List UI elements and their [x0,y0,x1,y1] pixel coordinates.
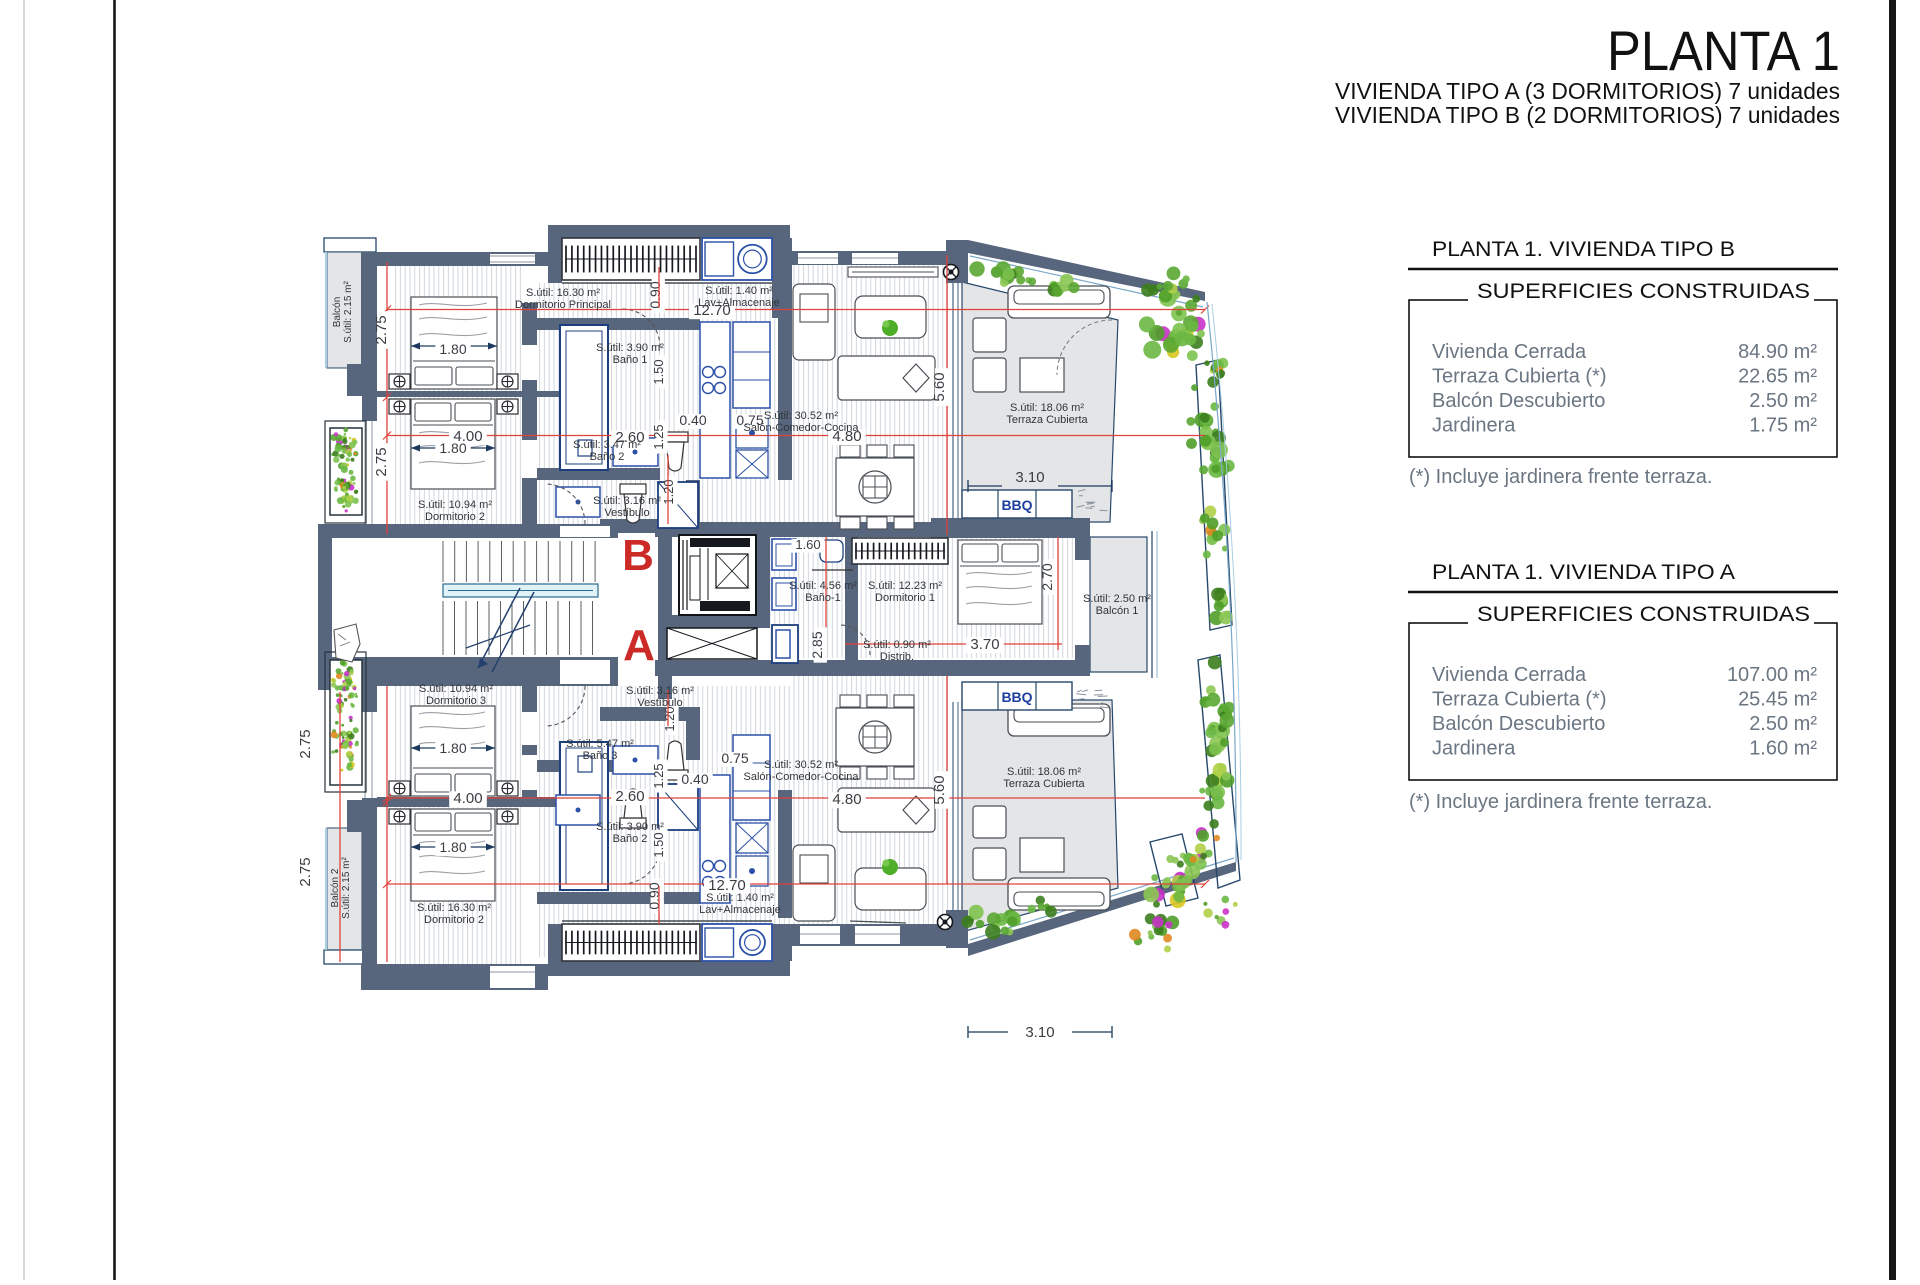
svg-text:Jardinera: Jardinera [1432,738,1516,760]
svg-text:Baño 1: Baño 1 [613,354,648,366]
svg-text:(*) Incluye jardinera frente t: (*) Incluye jardinera frente terraza. [1409,466,1712,488]
svg-text:S.útil: 3.47 m²: S.útil: 3.47 m² [573,439,641,451]
svg-text:S.útil: 30.52 m²: S.útil: 30.52 m² [764,410,838,422]
svg-text:Lav+Almacenaje: Lav+Almacenaje [699,904,781,916]
svg-text:Terraza Cubierta: Terraza Cubierta [1003,778,1085,790]
svg-text:SUPERFICIES CONSTRUIDAS: SUPERFICIES CONSTRUIDAS [1477,603,1810,626]
svg-text:A: A [623,621,655,670]
svg-text:Balcón Descubierto: Balcón Descubierto [1432,390,1605,412]
svg-text:Baño 3: Baño 3 [583,750,618,762]
svg-text:S.útil: 3.16 m²: S.útil: 3.16 m² [593,495,661,507]
svg-text:4.80: 4.80 [832,791,861,808]
svg-text:25.45 m²: 25.45 m² [1738,689,1817,711]
svg-text:2.50 m²: 2.50 m² [1749,390,1817,412]
svg-text:1.25: 1.25 [651,424,666,449]
svg-text:2.70: 2.70 [1039,563,1055,590]
svg-text:S.útil: 1.40 m²: S.útil: 1.40 m² [706,892,774,904]
svg-text:Baño-1: Baño-1 [805,592,840,604]
svg-text:3.10: 3.10 [1015,469,1044,486]
svg-text:PLANTA 1. VIVIENDA TIPO B: PLANTA 1. VIVIENDA TIPO B [1432,238,1735,261]
svg-text:S.útil: 3.90 m²: S.útil: 3.90 m² [596,821,664,833]
svg-text:1.25: 1.25 [651,763,666,788]
svg-text:1.60: 1.60 [795,537,820,552]
svg-text:S.útil: 10.94 m²: S.útil: 10.94 m² [419,683,493,695]
svg-text:S.útil: 5.47 m²: S.útil: 5.47 m² [566,738,634,750]
svg-text:Terraza Cubierta: Terraza Cubierta [1006,414,1088,426]
svg-text:Balcón 1: Balcón 1 [1096,605,1139,617]
svg-text:Dormitorio 2: Dormitorio 2 [424,914,484,926]
svg-text:S.útil: 12.23 m²: S.útil: 12.23 m² [868,580,942,592]
svg-text:BBQ: BBQ [1001,689,1032,705]
svg-text:S.útil: 16.30 m²: S.útil: 16.30 m² [526,287,600,299]
svg-text:2.50 m²: 2.50 m² [1749,713,1817,735]
svg-text:1.50: 1.50 [651,359,666,384]
svg-text:3.10: 3.10 [1025,1024,1054,1041]
svg-text:2.85: 2.85 [809,631,825,658]
svg-text:1.80: 1.80 [439,740,466,756]
svg-text:84.90 m²: 84.90 m² [1738,341,1817,363]
svg-text:Jardinera: Jardinera [1432,415,1516,437]
svg-text:SUPERFICIES CONSTRUIDAS: SUPERFICIES CONSTRUIDAS [1477,280,1810,303]
svg-text:PLANTA 1. VIVIENDA TIPO A: PLANTA 1. VIVIENDA TIPO A [1432,561,1735,584]
svg-text:S.útil: 3.16 m²: S.útil: 3.16 m² [626,685,694,697]
svg-text:Salón-Comedor-Cocina: Salón-Comedor-Cocina [744,771,860,783]
svg-text:Lav+Almacenaje: Lav+Almacenaje [698,297,780,309]
svg-text:Vestíbulo: Vestíbulo [604,507,649,519]
svg-text:S.útil: 30.52 m²: S.útil: 30.52 m² [764,759,838,771]
svg-text:0.40: 0.40 [681,771,708,787]
svg-text:1.75 m²: 1.75 m² [1749,415,1817,437]
svg-text:Vivienda Cerrada: Vivienda Cerrada [1432,664,1587,686]
svg-text:1.80: 1.80 [439,839,466,855]
svg-text:1.20: 1.20 [662,706,677,731]
svg-text:S.útil: 2.15 m²: S.útil: 2.15 m² [341,856,352,918]
svg-text:S.útil: 10.94 m²: S.útil: 10.94 m² [418,499,492,511]
svg-text:S.útil: 1.40 m²: S.útil: 1.40 m² [705,285,773,297]
svg-text:B: B [622,531,654,580]
svg-text:2.75: 2.75 [297,729,314,758]
svg-text:Baño 2: Baño 2 [613,833,648,845]
svg-text:2.75: 2.75 [373,447,390,476]
svg-text:S.útil: 4.56 m²: S.útil: 4.56 m² [789,580,857,592]
svg-text:BBQ: BBQ [1001,497,1032,513]
svg-text:Dormitorio 2: Dormitorio 2 [425,511,485,523]
svg-text:Dormitorio Principal: Dormitorio Principal [515,299,611,311]
svg-text:Balcón Descubierto: Balcón Descubierto [1432,713,1605,735]
svg-text:0.75: 0.75 [721,750,748,766]
svg-text:PLANTA 1: PLANTA 1 [1607,19,1840,82]
svg-text:0.90: 0.90 [647,281,663,308]
svg-text:Terraza Cubierta (*): Terraza Cubierta (*) [1432,689,1607,711]
svg-text:VIVIENDA TIPO B (2 DORMITORIOS: VIVIENDA TIPO B (2 DORMITORIOS) 7 unidad… [1335,102,1840,128]
svg-text:Vivienda Cerrada: Vivienda Cerrada [1432,341,1587,363]
svg-text:S.útil: 18.06 m²: S.útil: 18.06 m² [1007,766,1081,778]
svg-text:3.70: 3.70 [970,636,999,653]
svg-text:0.40: 0.40 [679,412,706,428]
svg-text:S.útil: 0.90 m²: S.útil: 0.90 m² [863,639,931,651]
svg-text:1.60 m²: 1.60 m² [1749,738,1817,760]
svg-text:Terraza Cubierta (*): Terraza Cubierta (*) [1432,366,1607,388]
svg-text:2.60: 2.60 [615,788,644,805]
svg-text:S.útil: 16.30 m²: S.útil: 16.30 m² [417,902,491,914]
svg-text:5.60: 5.60 [931,372,948,401]
svg-text:Baño 2: Baño 2 [590,451,625,463]
svg-text:S.útil: 18.06 m²: S.útil: 18.06 m² [1010,402,1084,414]
svg-text:Distrib.: Distrib. [880,651,914,663]
svg-text:VIVIENDA TIPO A (3 DORMITORIOS: VIVIENDA TIPO A (3 DORMITORIOS) 7 unidad… [1335,78,1840,104]
svg-text:5.60: 5.60 [931,775,948,804]
svg-text:2.75: 2.75 [297,857,314,886]
svg-text:Dormitorio 1: Dormitorio 1 [875,592,935,604]
svg-text:S.útil: 2.15 m²: S.útil: 2.15 m² [343,280,354,342]
svg-text:(*) Incluye jardinera frente t: (*) Incluye jardinera frente terraza. [1409,791,1712,813]
svg-text:22.65 m²: 22.65 m² [1738,366,1817,388]
svg-text:Balcón: Balcón [332,297,343,328]
svg-text:S.útil: 2.50 m²: S.útil: 2.50 m² [1083,593,1151,605]
svg-text:Vestíbulo: Vestíbulo [637,697,682,709]
svg-text:Salón-Comedor-Cocina: Salón-Comedor-Cocina [744,422,860,434]
svg-text:4.00: 4.00 [453,790,482,807]
svg-text:1.80: 1.80 [439,440,466,456]
svg-text:Dormitorio 3: Dormitorio 3 [426,695,486,707]
svg-text:107.00 m²: 107.00 m² [1727,664,1817,686]
svg-text:2.75: 2.75 [373,315,390,344]
svg-text:1.80: 1.80 [439,341,466,357]
svg-text:1.50: 1.50 [651,832,666,857]
svg-text:S.útil: 3.90 m²: S.útil: 3.90 m² [596,342,664,354]
svg-text:Balcón 2: Balcón 2 [330,868,341,907]
